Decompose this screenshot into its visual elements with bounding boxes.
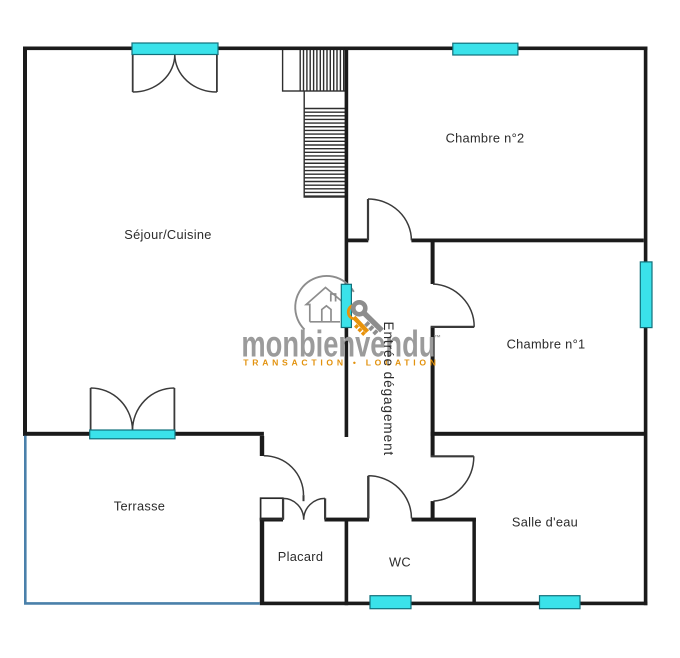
svg-text:WC: WC	[389, 555, 411, 570]
svg-text:Chambre n°2: Chambre n°2	[446, 131, 525, 146]
svg-text:Chambre n°1: Chambre n°1	[507, 337, 586, 352]
svg-text:™: ™	[434, 333, 442, 342]
svg-text:Terrasse: Terrasse	[114, 499, 165, 514]
svg-text:TRANSACTION • LOCATION: TRANSACTION • LOCATION	[243, 358, 439, 368]
svg-text:Entrée dégagement: Entrée dégagement	[381, 322, 396, 457]
svg-text:Salle d'eau: Salle d'eau	[512, 515, 578, 530]
svg-text:Séjour/Cuisine: Séjour/Cuisine	[124, 227, 211, 242]
svg-text:Placard: Placard	[278, 549, 324, 564]
